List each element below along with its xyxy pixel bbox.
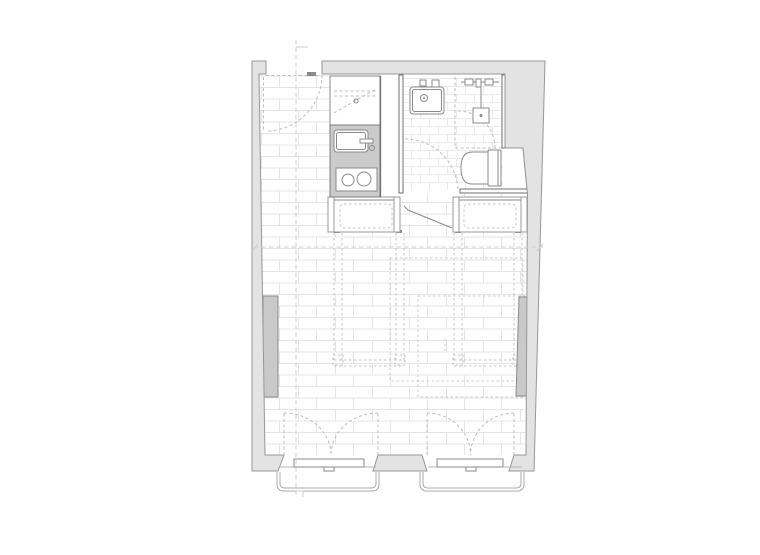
bathroom-wall-bottom	[460, 189, 528, 193]
window-right-handle	[466, 467, 476, 471]
unit-left-panel-l	[328, 197, 334, 232]
window-right-leaf	[437, 459, 503, 467]
floor-plan-canvas	[0, 0, 760, 555]
kitchen	[330, 76, 381, 197]
bathroom-wall-left	[399, 75, 403, 193]
floor-plan-svg	[0, 0, 760, 555]
unit-left-body	[328, 197, 400, 232]
toilet-tank	[488, 150, 501, 186]
unit-right-panel-l	[453, 197, 459, 232]
entry-door-stop	[307, 72, 316, 76]
unit-right-panel-r	[521, 197, 527, 232]
storage-unit-right	[453, 197, 527, 232]
shower-mixer-center	[476, 79, 481, 87]
toilet-bowl	[461, 152, 488, 184]
shower-mixer-left	[465, 79, 473, 85]
sink-faucet	[420, 80, 426, 86]
window-left-leaf	[294, 459, 364, 467]
kitchen-faucet	[360, 139, 373, 143]
unit-left-panel-r	[394, 197, 400, 232]
wall-pier-middle	[373, 455, 427, 471]
window-left-handle	[324, 467, 334, 471]
shower-head-dot	[480, 114, 483, 117]
radiator-left	[263, 296, 278, 397]
sink-drain-dot	[423, 97, 425, 99]
soap-tray	[432, 80, 439, 87]
storage-unit-left	[328, 197, 400, 232]
juliet-balcony-right-inner	[423, 472, 521, 488]
juliet-balcony-left-inner	[280, 472, 376, 488]
shower-mixer-right	[485, 79, 493, 85]
